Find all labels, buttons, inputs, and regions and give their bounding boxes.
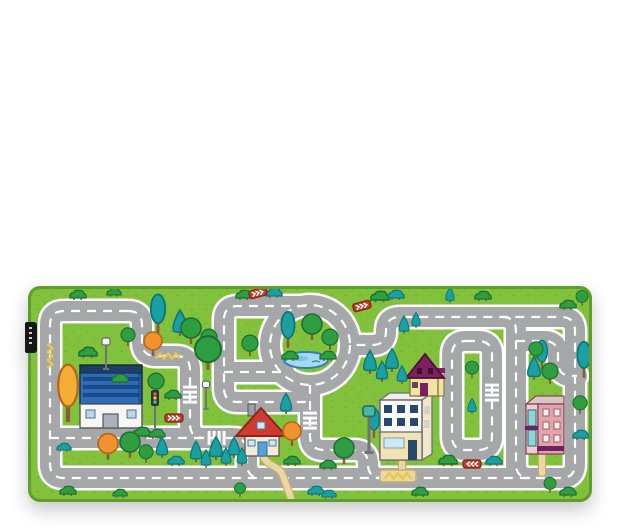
building-blue-tower [80,365,142,428]
chevron-arrow-sign [165,414,183,422]
building-white-office [380,393,432,460]
brand-tag [25,322,37,353]
product-photo [0,0,617,530]
building-pink-apartments [525,396,564,454]
rug-print [28,286,592,502]
play-mat-rug [28,286,592,502]
chevron-arrow-sign [463,460,481,468]
